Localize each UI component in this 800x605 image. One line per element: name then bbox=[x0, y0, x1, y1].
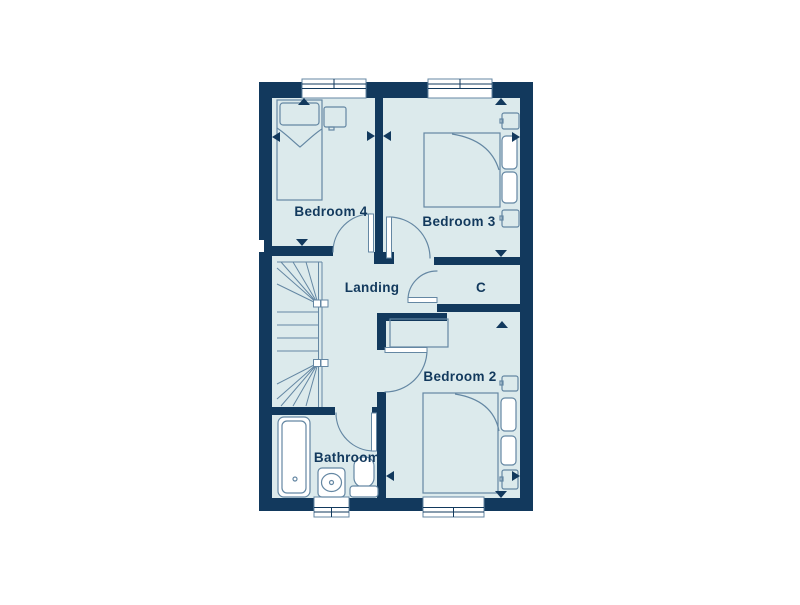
window-icon bbox=[314, 497, 349, 517]
sink-icon bbox=[318, 468, 345, 497]
wall-stairs-bathroom bbox=[266, 407, 335, 415]
floor-plan-page: Bedroom 4 Bedroom 3 Landing C Bedroom 2 … bbox=[0, 0, 800, 600]
window-icon bbox=[302, 79, 366, 98]
bathroom-label: Bathroom bbox=[314, 450, 380, 465]
floor-plan-drawing: Bedroom 4 Bedroom 3 Landing C Bedroom 2 … bbox=[0, 0, 800, 600]
wall-notch bbox=[258, 240, 264, 252]
wall-bed4-landing bbox=[266, 246, 333, 256]
bedroom-2-label: Bedroom 2 bbox=[423, 369, 496, 384]
wall-landing-bed2-left bbox=[377, 313, 386, 350]
wall-cupboard-bed2 bbox=[437, 304, 520, 312]
bedroom-3-label: Bedroom 3 bbox=[422, 214, 495, 229]
cupboard-label: C bbox=[476, 280, 486, 295]
window-icon bbox=[428, 79, 492, 98]
window-icon bbox=[423, 497, 484, 517]
wall-landing-bed2-top bbox=[377, 313, 447, 321]
bedroom-4-label: Bedroom 4 bbox=[294, 204, 367, 219]
wall-bed4-bed3 bbox=[375, 98, 383, 252]
bath-icon bbox=[278, 417, 310, 497]
wall-bed3-cupboard bbox=[434, 257, 520, 265]
landing-label: Landing bbox=[345, 280, 400, 295]
